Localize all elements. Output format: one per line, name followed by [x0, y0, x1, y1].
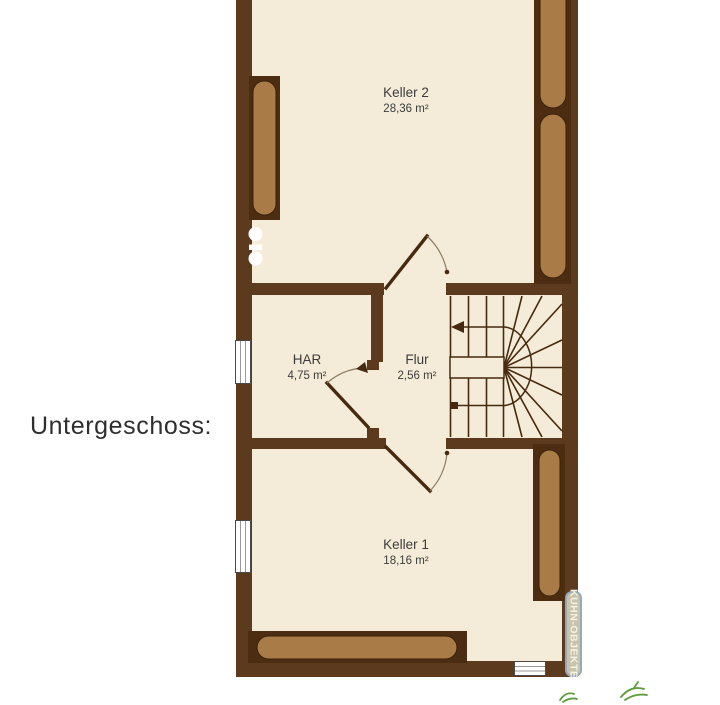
label-keller2-area: 28,36 m²: [383, 103, 429, 115]
wall-har-keller1: [236, 438, 386, 449]
page-title: Untergeschoss:: [30, 412, 212, 441]
door-keller1-swing-dot: [445, 451, 450, 456]
green-mark-left: [560, 693, 577, 702]
window-keller1-bottom: [515, 662, 546, 676]
green-decor-marks: [560, 682, 647, 702]
fixture-keller2-right-top: [540, 0, 566, 108]
connection-circle-bottom: [249, 252, 263, 266]
floor-area: [236, 0, 578, 677]
fixture-keller1-bottom: [257, 636, 457, 659]
connection-bar: [249, 245, 262, 251]
utility-connections: [249, 227, 263, 266]
green-mark-right: [621, 682, 647, 700]
stair-landing-rect: [450, 357, 504, 378]
window-keller1-left: [236, 521, 251, 573]
label-keller1-name: Keller 1: [383, 537, 429, 552]
watermark-badge: KUHN-OBJEKTE: [565, 591, 582, 677]
label-flur-name: Flur: [405, 352, 429, 367]
wall-har-flur: [371, 295, 383, 362]
label-keller2-name: Keller 2: [383, 85, 429, 100]
wall-keller2-har: [236, 283, 384, 295]
label-keller1-area: 18,16 m²: [383, 555, 429, 567]
floor-plan-page: Keller 2 28,36 m² HAR 4,75 m² Flur 2,56 …: [0, 0, 720, 705]
wall-stair-top: [446, 283, 578, 295]
floor-plan-drawing: Keller 2 28,36 m² HAR 4,75 m² Flur 2,56 …: [0, 0, 720, 705]
label-flur-area: 2,56 m²: [398, 370, 437, 382]
fixture-keller2-right-bottom: [540, 114, 566, 278]
wall-har-keller1-stub: [367, 428, 379, 439]
label-har-name: HAR: [293, 352, 322, 367]
door-keller2-swing-dot: [445, 270, 450, 275]
fixture-keller1-right: [539, 450, 560, 596]
label-har-area: 4,75 m²: [288, 370, 327, 382]
wall-har-flur-cap: [367, 360, 379, 370]
window-har-left: [236, 341, 251, 384]
stair-start-marker: [451, 402, 458, 409]
fixture-keller2-left: [253, 81, 276, 215]
connection-circle-top: [249, 227, 263, 241]
